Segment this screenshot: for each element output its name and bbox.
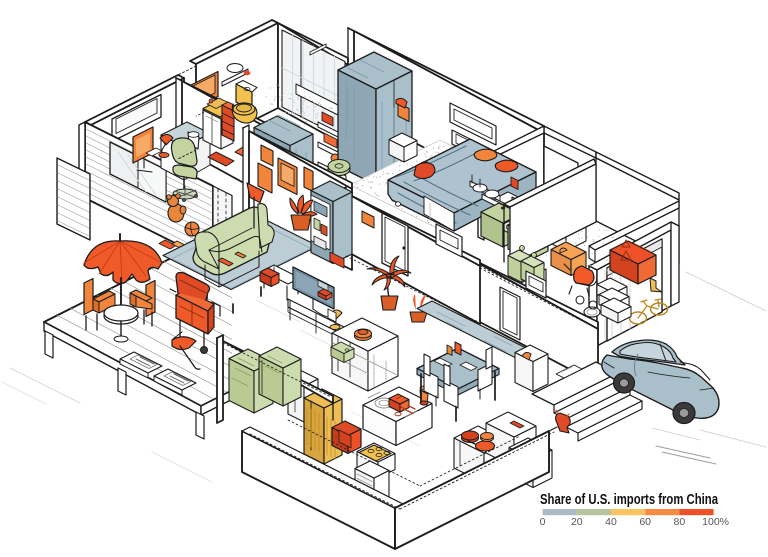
svg-text:100%: 100% [702, 516, 729, 528]
svg-text:Share of U.S. imports from Chi: Share of U.S. imports from China [540, 492, 719, 508]
svg-text:0: 0 [540, 516, 546, 528]
svg-text:80: 80 [674, 516, 686, 528]
svg-text:20: 20 [571, 516, 583, 528]
svg-text:40: 40 [605, 516, 617, 528]
svg-text:60: 60 [639, 516, 651, 528]
